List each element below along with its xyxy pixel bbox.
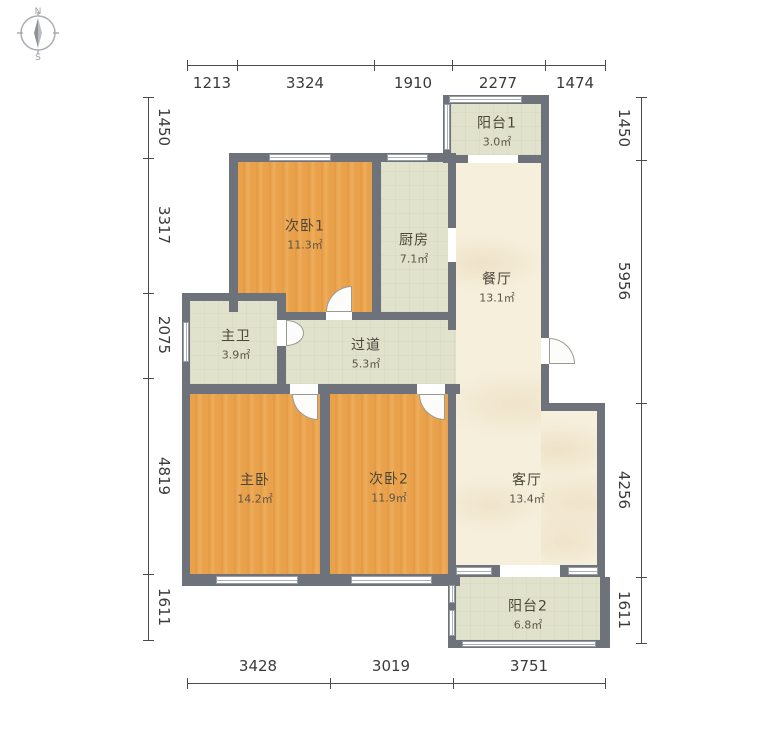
dim-tick bbox=[636, 643, 647, 644]
door-arc-entry bbox=[549, 338, 575, 364]
room-bedroom2-label: 次卧2 11.9㎡ bbox=[369, 469, 409, 506]
compass-needle-icon bbox=[34, 18, 38, 48]
dim-rail-bottom bbox=[187, 683, 605, 684]
room-bedroom1-label: 次卧1 11.3㎡ bbox=[285, 216, 325, 253]
dim-tick bbox=[143, 574, 154, 575]
room-name: 次卧1 bbox=[285, 216, 325, 236]
window bbox=[449, 96, 522, 103]
dim-tick bbox=[237, 60, 238, 71]
dim-tick bbox=[636, 97, 647, 98]
dim-tick bbox=[187, 60, 188, 71]
floor-plan-canvas: N S 1213 3324 1910 2277 1474 3428 3019 3… bbox=[0, 0, 773, 729]
room-bath-label: 主卫 3.9㎡ bbox=[221, 326, 251, 363]
wall bbox=[318, 384, 417, 394]
wall bbox=[277, 346, 286, 384]
dim-label: 1450 bbox=[155, 108, 173, 146]
wall bbox=[541, 95, 549, 163]
wall bbox=[445, 384, 460, 394]
wall bbox=[448, 394, 456, 574]
dim-label: 1611 bbox=[155, 588, 173, 626]
room-area: 5.3㎡ bbox=[351, 356, 381, 372]
window bbox=[183, 322, 189, 362]
window bbox=[449, 585, 455, 603]
dim-tick bbox=[330, 678, 331, 689]
compass-north-label: N bbox=[35, 7, 42, 17]
dim-tick bbox=[143, 97, 154, 98]
dim-tick bbox=[143, 158, 154, 159]
dim-label: 3317 bbox=[155, 206, 173, 244]
room-name: 主卫 bbox=[221, 326, 251, 346]
wall bbox=[372, 162, 381, 320]
dim-tick bbox=[143, 293, 154, 294]
wall bbox=[182, 293, 286, 301]
dim-tick bbox=[374, 60, 375, 71]
wall bbox=[541, 163, 549, 338]
wall bbox=[229, 153, 238, 312]
room-area: 3.0㎡ bbox=[477, 134, 517, 150]
room-name: 主卧 bbox=[237, 470, 273, 490]
room-name: 次卧2 bbox=[369, 469, 409, 489]
dim-tick bbox=[545, 60, 546, 71]
dim-rail-right bbox=[641, 97, 642, 643]
room-area: 13.1㎡ bbox=[479, 290, 515, 306]
wall bbox=[541, 364, 549, 403]
window bbox=[351, 576, 432, 584]
room-balcony1-label: 阳台1 3.0㎡ bbox=[477, 113, 517, 150]
window bbox=[449, 610, 455, 636]
dim-label: 1474 bbox=[556, 74, 594, 92]
window bbox=[462, 641, 596, 647]
dim-label: 1910 bbox=[394, 74, 432, 92]
room-name: 客厅 bbox=[509, 470, 545, 490]
wall bbox=[541, 403, 605, 411]
window bbox=[444, 104, 450, 150]
room-area: 7.1㎡ bbox=[399, 251, 429, 267]
dim-label: 4819 bbox=[155, 457, 173, 495]
compass-icon: N S bbox=[10, 6, 66, 62]
dim-tick bbox=[605, 678, 606, 689]
room-name: 阳台2 bbox=[508, 596, 548, 616]
compass-south-label: S bbox=[35, 53, 41, 62]
room-name: 厨房 bbox=[399, 230, 429, 250]
room-master-label: 主卧 14.2㎡ bbox=[237, 470, 273, 507]
dim-label: 3019 bbox=[372, 657, 410, 675]
dim-label: 1213 bbox=[193, 74, 231, 92]
window bbox=[568, 567, 598, 575]
dim-tick bbox=[453, 678, 454, 689]
room-name: 阳台1 bbox=[477, 113, 517, 133]
wall bbox=[600, 577, 610, 648]
dim-tick bbox=[605, 60, 606, 71]
dim-label: 5956 bbox=[615, 262, 633, 300]
room-area: 13.4㎡ bbox=[509, 491, 545, 507]
dim-tick bbox=[636, 577, 647, 578]
dim-label: 3751 bbox=[510, 657, 548, 675]
room-kitchen-label: 厨房 7.1㎡ bbox=[399, 230, 429, 267]
window bbox=[456, 567, 492, 575]
room-name: 过道 bbox=[351, 335, 381, 355]
room-balcony2-label: 阳台2 6.8㎡ bbox=[508, 596, 548, 633]
room-living-label: 客厅 13.4㎡ bbox=[509, 470, 545, 507]
dim-label: 2075 bbox=[155, 316, 173, 354]
dim-tick bbox=[636, 160, 647, 161]
wall bbox=[352, 312, 456, 320]
dim-rail-top bbox=[187, 65, 605, 66]
wall bbox=[448, 155, 456, 228]
room-dining-label: 餐厅 13.1㎡ bbox=[479, 269, 515, 306]
dim-rail-left bbox=[148, 97, 149, 640]
dim-tick bbox=[452, 60, 453, 71]
wall bbox=[277, 301, 286, 320]
wall bbox=[597, 403, 605, 577]
room-living-floor bbox=[541, 411, 597, 565]
dim-label: 3428 bbox=[239, 657, 277, 675]
room-area: 11.9㎡ bbox=[369, 490, 409, 506]
dim-tick bbox=[143, 640, 154, 641]
dim-label: 1611 bbox=[615, 591, 633, 629]
room-area: 11.3㎡ bbox=[285, 237, 325, 253]
window bbox=[387, 154, 428, 161]
window bbox=[216, 576, 298, 584]
wall bbox=[182, 384, 290, 394]
room-name: 餐厅 bbox=[479, 269, 515, 289]
dim-tick bbox=[143, 378, 154, 379]
dim-label: 2277 bbox=[479, 74, 517, 92]
room-area: 14.2㎡ bbox=[237, 491, 273, 507]
room-area: 3.9㎡ bbox=[221, 347, 251, 363]
dim-tick bbox=[636, 403, 647, 404]
dim-label: 1450 bbox=[615, 109, 633, 147]
window bbox=[269, 154, 331, 161]
dim-label: 3324 bbox=[286, 74, 324, 92]
dim-label: 4256 bbox=[615, 471, 633, 509]
dim-tick bbox=[187, 678, 188, 689]
wall bbox=[320, 394, 330, 586]
room-area: 6.8㎡ bbox=[508, 617, 548, 633]
wall bbox=[518, 155, 549, 163]
room-corridor-label: 过道 5.3㎡ bbox=[351, 335, 381, 372]
